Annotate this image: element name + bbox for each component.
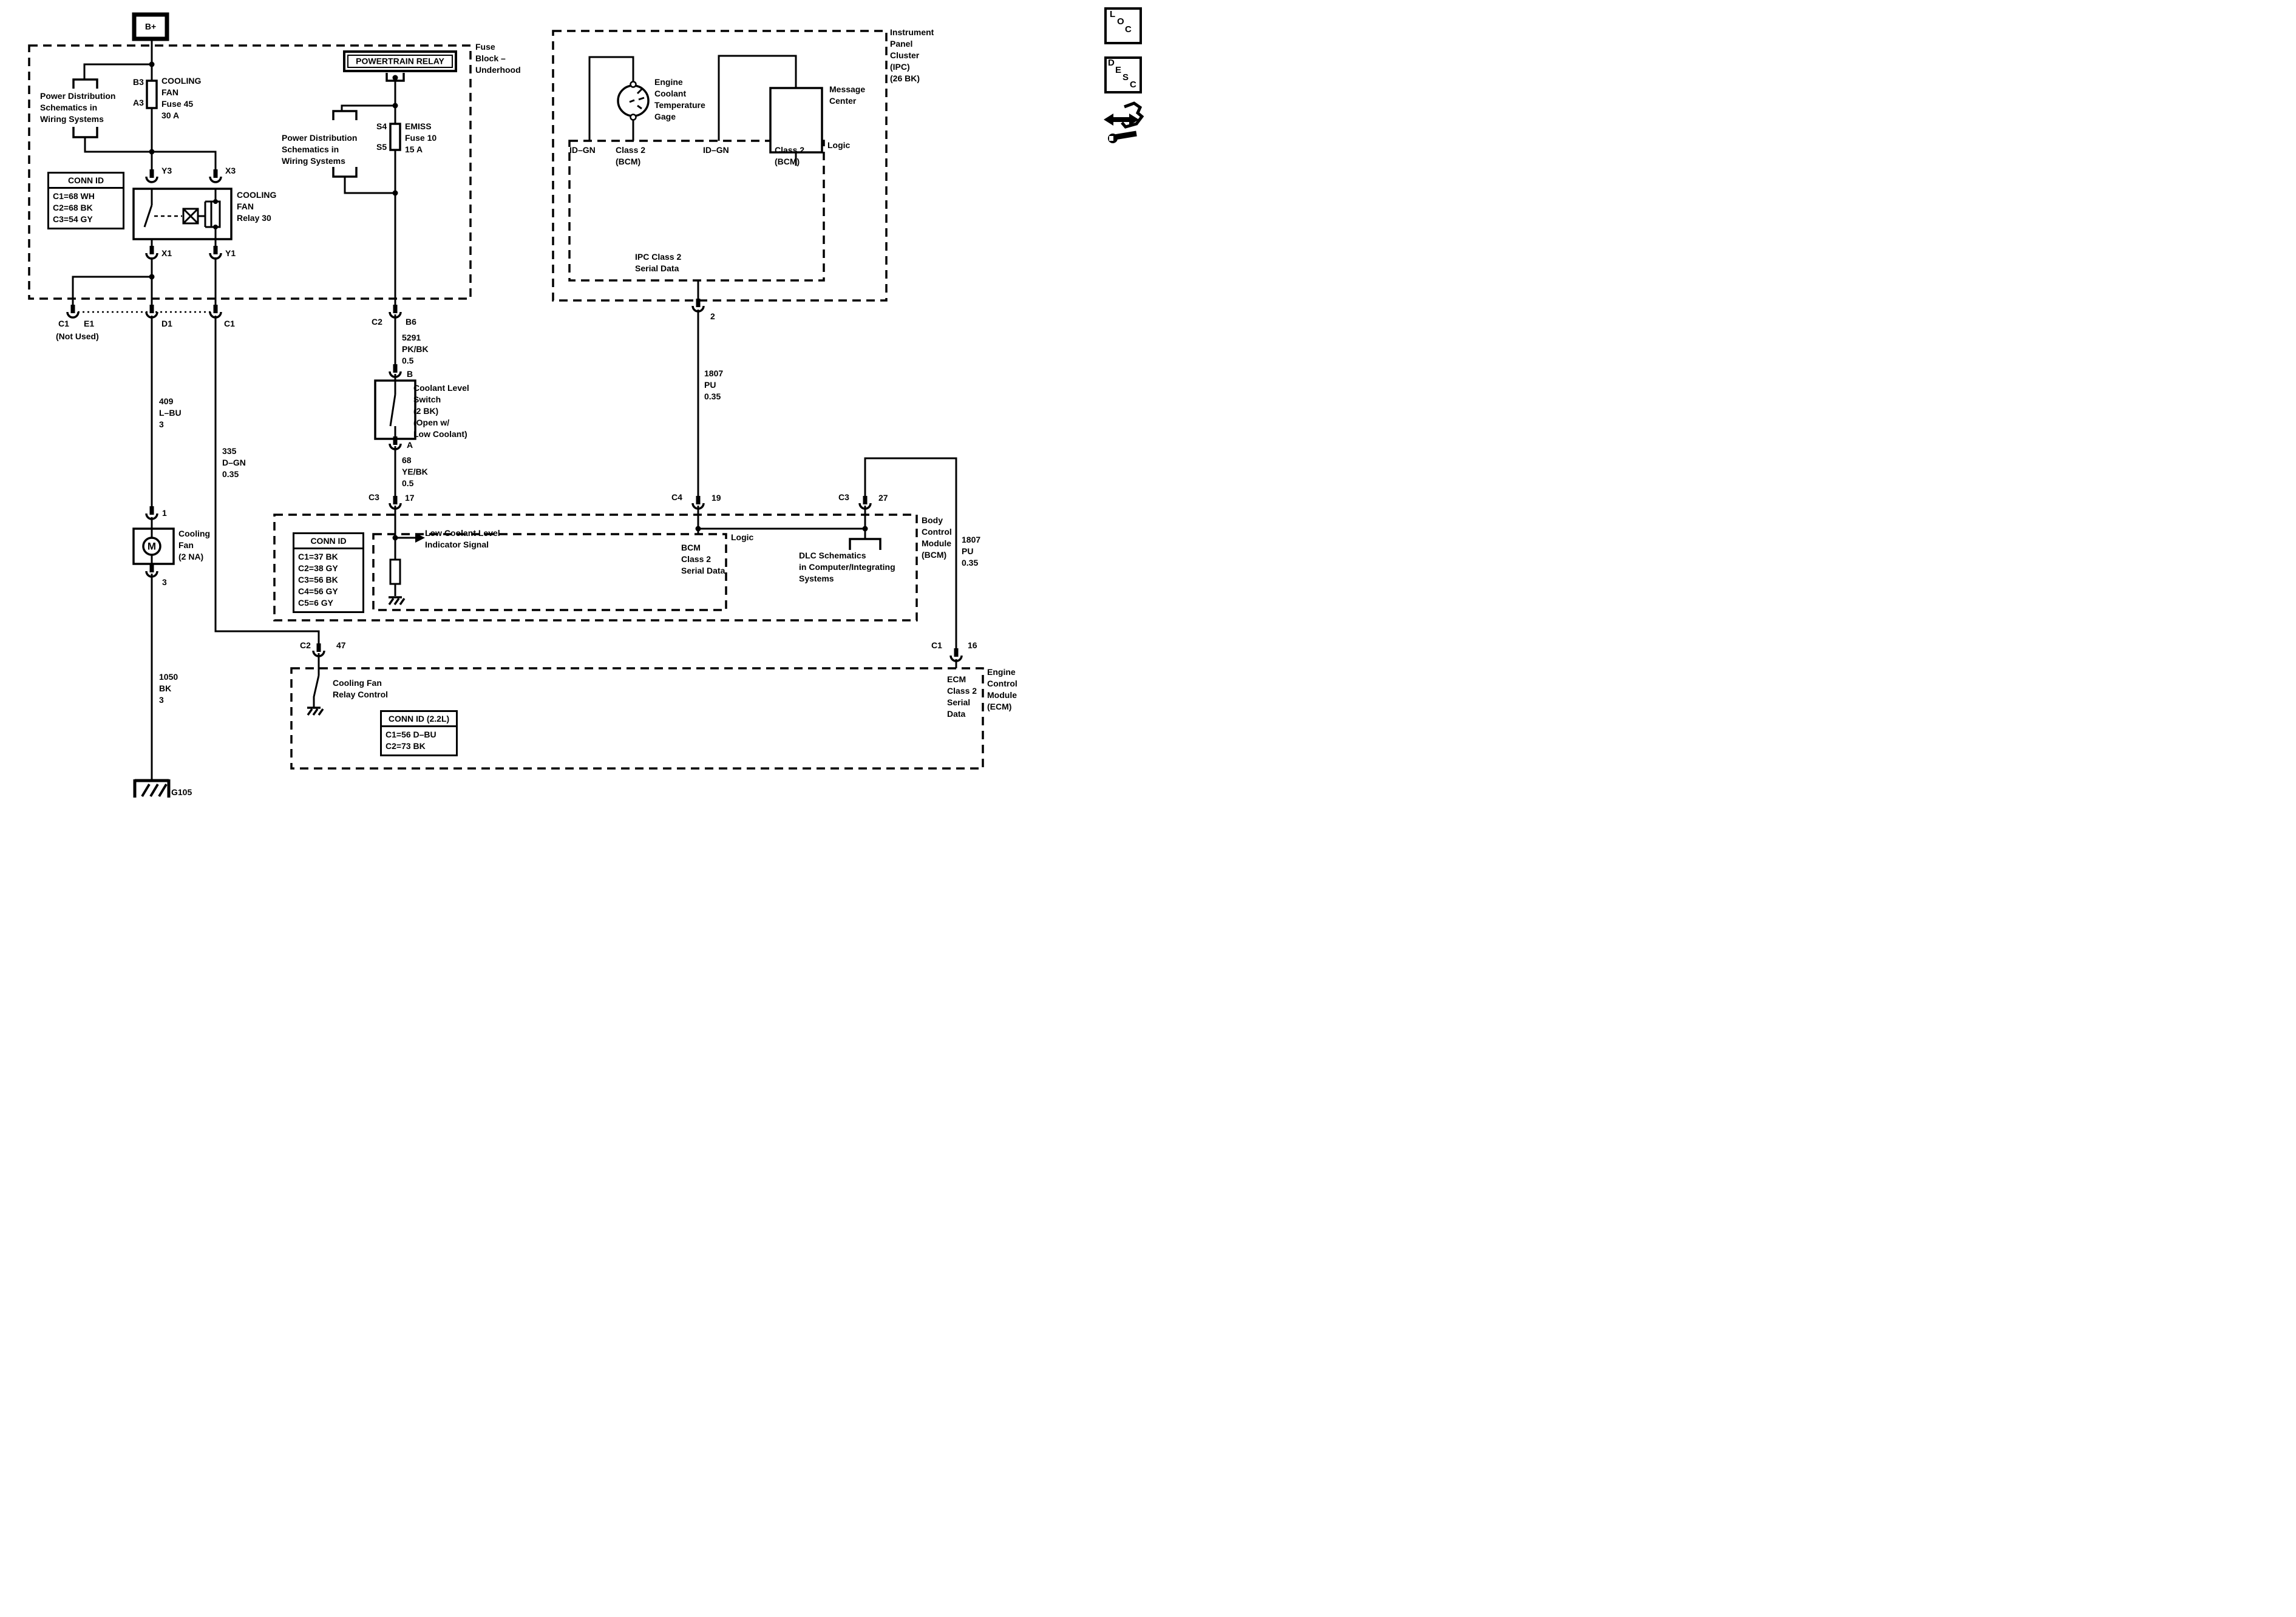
wire-1050-bk-3: 1050 BK 3 [159, 671, 178, 706]
fuse45-label: COOLING FAN Fuse 45 30 A [161, 75, 201, 121]
relay-pin-y1: Y1 [225, 248, 236, 259]
conn-c1-fan: C1 [224, 318, 235, 330]
bcm-conn-c4: C4 [671, 492, 682, 503]
ecm-serial-data: ECM Class 2 Serial Data [947, 674, 977, 720]
loc-letter-1: L [1110, 10, 1115, 19]
pin-17: 17 [405, 492, 415, 504]
desc-letter-3: S [1123, 73, 1129, 82]
ecm-conn-c2: C2 [300, 640, 311, 651]
ipc-class2-1: Class 2 (BCM) [616, 144, 645, 168]
wire-5291-pkbk: 5291 PK/BK 0.5 [402, 332, 429, 367]
power-dist-ref-1: Power Distribution Schematics in Wiring … [40, 90, 115, 125]
ipc-serial-data: IPC Class 2 Serial Data [635, 251, 681, 274]
conn-e1: E1 [84, 318, 94, 330]
conn-not-used: (Not Used) [56, 331, 99, 342]
conn-c1-notused: C1 [58, 318, 69, 330]
fuse45-pin-a3: A3 [133, 97, 144, 109]
relay-pin-x3: X3 [225, 165, 236, 177]
conn-c3-switch: C3 [369, 492, 379, 503]
ipc-logic: Logic [827, 140, 850, 151]
ipc-label: Instrument Panel Cluster (IPC) (26 BK) [890, 27, 934, 84]
battery-bplus-label: B+ [145, 21, 156, 33]
cooling-fan-relay-control: Cooling Fan Relay Control [333, 677, 388, 700]
wire-68-yebk: 68 YE/BK 0.5 [402, 455, 428, 489]
fuse45-pin-b3: B3 [133, 76, 144, 88]
fan-pin-3: 3 [162, 577, 167, 588]
desc-letter-4: C [1130, 80, 1136, 89]
relay-pin-x1: X1 [161, 248, 172, 259]
bcm-pin-19: 19 [712, 492, 721, 504]
loc-letter-2: O [1117, 17, 1124, 26]
motor-m: M [148, 541, 156, 552]
wiring-diagram-page: CONN ID C1=68 WH C2=68 BK C3=54 GY CONN … [0, 0, 1148, 808]
wire-1807-pu-ipc: 1807 PU 0.35 [704, 368, 723, 402]
coolant-level-switch-label: Coolant Level Switch (2 BK) (Open w/ Low… [413, 382, 469, 440]
dlc-ref-label: DLC Schematics in Computer/Integrating S… [799, 550, 895, 585]
low-coolant-signal-label: Low Coolant Level Indicator Signal [425, 527, 500, 551]
ipc-class2-2: Class 2 (BCM) [775, 144, 804, 168]
conn-c2-switch: C2 [372, 316, 382, 328]
ecm-conn-c1: C1 [931, 640, 942, 651]
desc-letter-2: E [1115, 66, 1121, 75]
ipc-pin-2: 2 [710, 311, 715, 322]
emiss-pin-s4: S4 [376, 121, 387, 132]
fan-pin-1: 1 [162, 507, 167, 519]
ect-gage-label: Engine Coolant Temperature Gage [654, 76, 705, 123]
bcm-logic: Logic [731, 532, 753, 543]
cooling-fan-relay-label: COOLING FAN Relay 30 [237, 189, 276, 224]
ecm-label: Engine Control Module (ECM) [987, 666, 1017, 713]
powertrain-relay-label: POWERTRAIN RELAY [356, 56, 444, 67]
ipc-idgn-2: ID–GN [703, 144, 729, 156]
emiss-fuse-label: EMISS Fuse 10 15 A [405, 121, 436, 155]
wire-1807-pu-ecm: 1807 PU 0.35 [962, 534, 980, 569]
ecm-pin-16: 16 [968, 640, 977, 651]
conn-d1: D1 [161, 318, 172, 330]
power-dist-ref-2: Power Distribution Schematics in Wiring … [282, 132, 357, 167]
ipc-idgn-1: ID–GN [569, 144, 596, 156]
emiss-pin-s5: S5 [376, 141, 387, 153]
cooling-fan-label: Cooling Fan (2 NA) [178, 528, 210, 563]
relay-pin-y3: Y3 [161, 165, 172, 177]
conn-a: A [407, 439, 413, 451]
bcm-serial-data: BCM Class 2 Serial Data [681, 542, 725, 577]
conn-b: B [407, 368, 413, 380]
ecm-pin-47: 47 [336, 640, 346, 651]
message-center-label: Message Center [829, 84, 865, 107]
ground-g105-label: G105 [171, 787, 192, 798]
wire-335-dgn: 335 D–GN 0.35 [222, 446, 246, 480]
bcm-conn-c3: C3 [838, 492, 849, 503]
desc-letter-1: D [1108, 58, 1115, 67]
fuse-block-label: Fuse Block – Underhood [475, 41, 521, 76]
wire-409-lbu-3: 409 L–BU 3 [159, 396, 182, 430]
bcm-label: Body Control Module (BCM) [922, 515, 952, 561]
loc-letter-3: C [1125, 25, 1132, 34]
conn-b6: B6 [406, 316, 416, 328]
diagram-labels: B+Fuse Block – UnderhoodPower Distributi… [0, 0, 1148, 808]
bcm-pin-27: 27 [878, 492, 888, 504]
